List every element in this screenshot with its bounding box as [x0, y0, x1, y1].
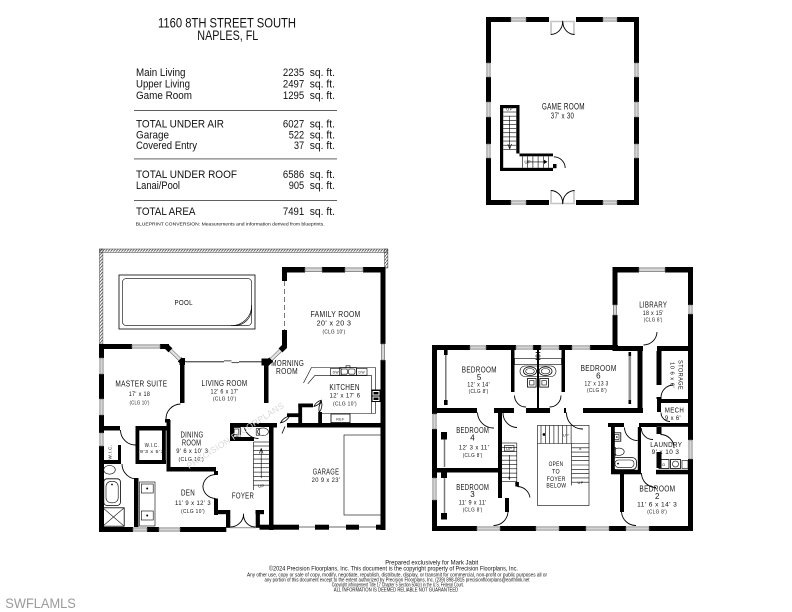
svg-text:sq. ft.: sq. ft. [310, 90, 335, 102]
svg-text:11' 9 x 12' 3: 11' 9 x 12' 3 [175, 500, 211, 507]
svg-text:GARAGE: GARAGE [313, 467, 340, 476]
svg-text:11' 9 x 11': 11' 9 x 11' [459, 499, 487, 506]
svg-text:(CLG 10'): (CLG 10') [213, 397, 237, 403]
svg-text:12' x 17' 6: 12' x 17' 6 [330, 393, 361, 400]
svg-text:POOL: POOL [174, 298, 193, 307]
svg-text:2497: 2497 [283, 79, 304, 91]
svg-text:TO: TO [552, 468, 560, 475]
svg-text:11' 6 x 14' 3: 11' 6 x 14' 3 [637, 501, 677, 508]
svg-text:Main Living: Main Living [136, 67, 186, 79]
svg-text:TOTAL UNDER ROOF: TOTAL UNDER ROOF [136, 169, 237, 181]
svg-text:10 6 x 6': 10 6 x 6' [669, 362, 675, 388]
svg-text:sq. ft.: sq. ft. [310, 180, 335, 192]
svg-text:7491: 7491 [283, 206, 304, 218]
svg-text:sq. ft.: sq. ft. [310, 140, 335, 152]
svg-text:ROOM: ROOM [182, 439, 202, 448]
svg-text:(CLG 8'): (CLG 8') [463, 507, 483, 513]
svg-text:18 x 15': 18 x 15' [643, 310, 664, 317]
svg-text:TOTAL AREA: TOTAL AREA [136, 206, 196, 218]
svg-text:©2024 Precision Floorplans, In: ©2024 Precision Floorplans, Inc. This do… [269, 565, 518, 573]
svg-text:2235: 2235 [283, 67, 304, 79]
svg-text:12' x 13 3: 12' x 13 3 [585, 381, 609, 388]
svg-text:UP: UP [506, 447, 512, 451]
svg-text:Lanai/Pool: Lanai/Pool [136, 180, 180, 192]
svg-text:(CLG 8'): (CLG 8') [587, 388, 607, 394]
svg-text:UP: UP [525, 160, 532, 165]
svg-text:W.I.C.: W.I.C. [108, 445, 114, 460]
svg-text:12' 6 x 17': 12' 6 x 17' [211, 389, 239, 396]
svg-text:sq. ft.: sq. ft. [310, 206, 335, 218]
svg-text:LIBRARY: LIBRARY [639, 300, 667, 309]
svg-text:8: 8 [508, 476, 511, 480]
svg-text:9' x 10 3: 9' x 10 3 [652, 449, 680, 456]
svg-text:Covered Entry: Covered Entry [136, 140, 198, 152]
svg-text:(CLG 8'): (CLG 8') [463, 453, 483, 459]
svg-text:20' x 20 3: 20' x 20 3 [317, 321, 352, 328]
svg-text:sq. ft.: sq. ft. [310, 79, 335, 91]
svg-text:MASTER SUITE: MASTER SUITE [115, 379, 167, 388]
svg-text:MECH: MECH [665, 406, 684, 415]
svg-text:905: 905 [289, 180, 304, 192]
svg-text:(CLG 8'): (CLG 8') [647, 509, 667, 515]
svg-text:ALL INFORMATION IS DEEMED RELI: ALL INFORMATION IS DEEMED RELIABLE NOT G… [334, 588, 459, 594]
svg-text:UP: UP [258, 484, 265, 489]
svg-text:9 x 6': 9 x 6' [665, 415, 681, 422]
svg-text:37: 37 [294, 140, 304, 152]
svg-text:sq. ft.: sq. ft. [310, 67, 335, 79]
svg-text:2: 2 [655, 492, 660, 501]
svg-text:GAME ROOM: GAME ROOM [542, 101, 585, 111]
svg-text:REF: REF [336, 417, 345, 421]
svg-text:12' 3 x 11': 12' 3 x 11' [459, 445, 490, 452]
svg-text:FAMILY ROOM: FAMILY ROOM [311, 310, 361, 319]
svg-text:(CLG 10'): (CLG 10') [333, 401, 357, 407]
svg-text:KITCHEN: KITCHEN [329, 383, 360, 392]
svg-text:sq. ft.: sq. ft. [310, 169, 335, 181]
svg-text:UP: UP [506, 107, 513, 112]
svg-text:DEN: DEN [181, 489, 195, 498]
svg-text:FOYER: FOYER [232, 491, 254, 500]
svg-text:(CLG 8'): (CLG 8') [469, 389, 489, 395]
svg-text:Upper Living: Upper Living [136, 79, 190, 91]
svg-text:(CLG 10'): (CLG 10') [181, 509, 205, 515]
svg-text:9'3 x 5'3: 9'3 x 5'3 [140, 449, 164, 454]
svg-text:BELOW: BELOW [546, 483, 566, 490]
svg-text:BLUEPRINT CONVERSION: Measurem: BLUEPRINT CONVERSION: Measurements and i… [136, 222, 325, 228]
svg-text:D: D [662, 462, 665, 467]
svg-text:DW: DW [333, 370, 340, 374]
svg-text:(CLG 10'): (CLG 10') [323, 329, 346, 335]
svg-text:(CLG 8'): (CLG 8') [644, 318, 663, 324]
svg-text:12' x 14': 12' x 14' [467, 381, 490, 388]
svg-text:Game Room: Game Room [136, 90, 192, 102]
svg-text:STORAGE: STORAGE [677, 360, 684, 390]
svg-text:LAUNDRY: LAUNDRY [650, 440, 682, 449]
svg-text:6: 6 [596, 371, 601, 380]
svg-text:6586: 6586 [283, 169, 304, 181]
svg-text:DW: DW [358, 370, 365, 374]
svg-text:OPEN: OPEN [549, 461, 564, 468]
svg-text:37' x 30: 37' x 30 [551, 111, 575, 120]
svg-text:SWFLAMLS: SWFLAMLS [5, 596, 76, 611]
svg-text:1295: 1295 [283, 90, 304, 102]
svg-text:UP: UP [563, 434, 569, 438]
svg-text:(CLG 10'): (CLG 10') [130, 400, 150, 406]
svg-text:LIVING ROOM: LIVING ROOM [202, 379, 248, 388]
svg-text:NAPLES, FL: NAPLES, FL [197, 28, 258, 43]
svg-text:3: 3 [470, 490, 475, 499]
svg-text:8: 8 [579, 447, 582, 451]
svg-text:20 9 x 23': 20 9 x 23' [312, 477, 341, 484]
svg-text:4: 4 [470, 433, 475, 442]
svg-text:ROOM: ROOM [276, 367, 298, 376]
svg-text:UP: UP [577, 481, 583, 485]
svg-text:17' x 18: 17' x 18 [129, 391, 151, 398]
